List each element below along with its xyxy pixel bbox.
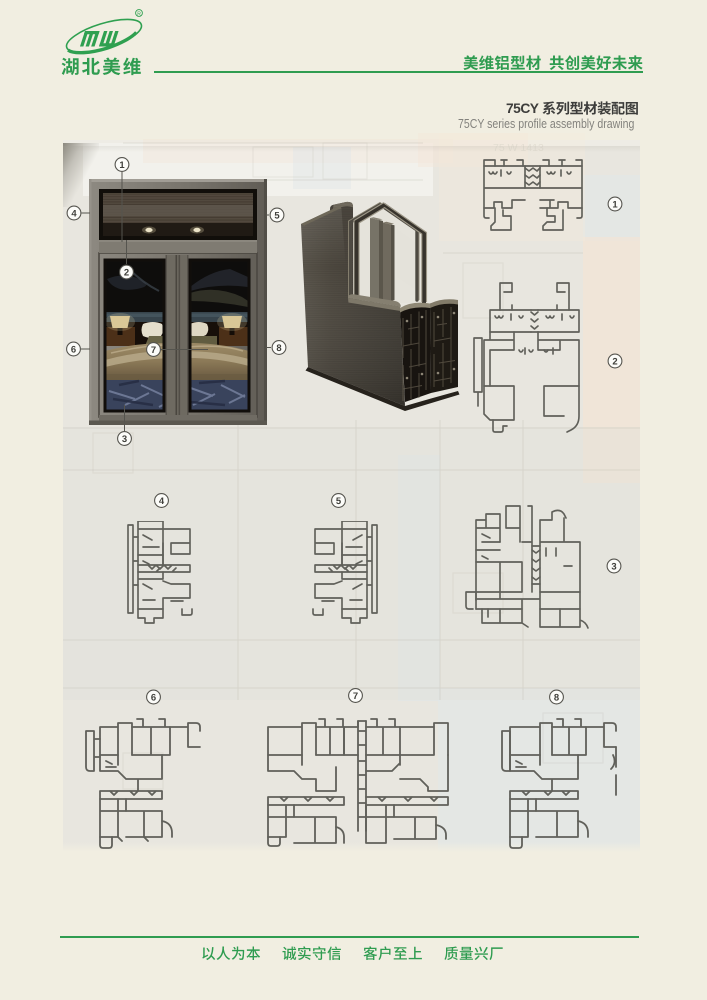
svg-text:R: R bbox=[137, 11, 141, 17]
